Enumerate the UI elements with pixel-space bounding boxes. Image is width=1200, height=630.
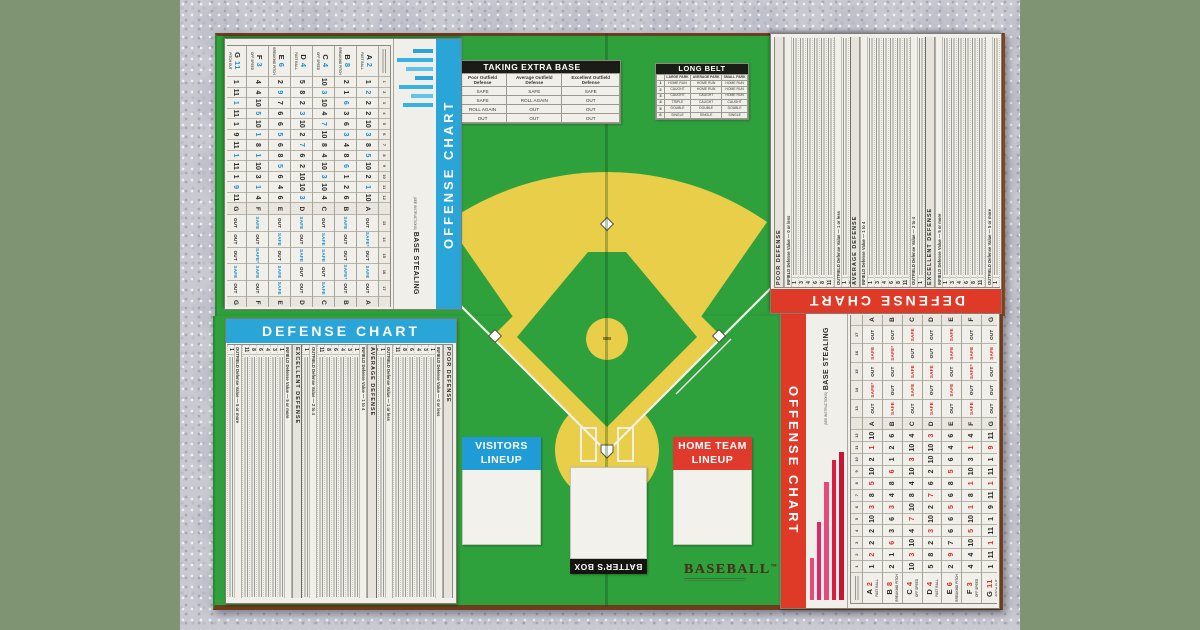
- defense-row: 4: [957, 37, 964, 287]
- offense-letter-cell: D: [291, 296, 312, 307]
- offense-row-label: B 8BREAKING PITCH: [335, 46, 356, 76]
- defense-row-text: [890, 38, 894, 275]
- offense-row: D 4FAST BALL582310276210103DSAFEOUTSAFEO…: [291, 46, 313, 307]
- offense-number-cell: 10: [922, 454, 941, 466]
- offense-steal-cell: SAFE: [902, 363, 921, 381]
- offense-number-cell: 2: [863, 537, 882, 549]
- offense-col-number: 1: [851, 561, 862, 573]
- defense-row-text: [402, 357, 406, 597]
- defense-row-text: [340, 357, 344, 597]
- offense-steal-cell: OUT: [269, 247, 290, 263]
- offense-number-cell: 4: [269, 181, 290, 192]
- offense-row: A 2FAST BALL122210385102110AOUTSAFE*OUTS…: [357, 46, 379, 307]
- defense-row-text: [821, 38, 825, 275]
- offense-row-pitch: FAST BALL: [295, 52, 299, 70]
- offense-steal-cell: OUT: [335, 231, 356, 247]
- taking-extra-base-table: TAKING EXTRA BASE Poor Outfield DefenseA…: [443, 60, 621, 124]
- offense-number-cell: 2: [357, 108, 378, 119]
- defense-row-text: [251, 357, 255, 597]
- offense-row-pitch: PITCH OUT: [994, 579, 997, 596]
- defense-row-number: 8: [820, 277, 826, 287]
- offense-letter-cell: C: [902, 418, 921, 430]
- offense-row: G 11PITCH OUT11111119111111911GOUTOUTOUT…: [227, 46, 247, 307]
- offense-number-cell: 10: [902, 561, 921, 573]
- offense-number-cell: 10: [313, 76, 334, 87]
- offense-steal-cell: SAFE: [227, 263, 246, 279]
- offense-number-cell: 6: [291, 150, 312, 161]
- teb-cell: ROLL AGAIN: [507, 96, 562, 105]
- offense-row-pitch: FAST BALL: [361, 52, 365, 70]
- defense-subsection-title: INFIELD Defense Value — 0 or less: [435, 345, 442, 598]
- offense-number-cell: 11: [982, 525, 997, 537]
- offense-steal-cell: OUT: [357, 214, 378, 230]
- offense-number-cell: 8: [883, 478, 902, 490]
- offense-steal-cell: OUT: [982, 400, 997, 418]
- defense-row-text: [326, 357, 330, 597]
- defense-row: 3: [302, 345, 303, 598]
- defense-row-number: 8: [971, 277, 977, 287]
- offense-row-label: A 2FAST BALL: [357, 46, 378, 76]
- defense-row-text: [395, 357, 399, 597]
- offense-col-number: 8: [379, 150, 390, 161]
- defense-subsection-title: INFIELD Defense Value — 0 or less: [785, 37, 792, 287]
- offense-number-cell: 1: [357, 76, 378, 87]
- offense-number-cell: 11: [227, 192, 246, 203]
- offense-row-label: A 2FAST BALL: [863, 573, 882, 603]
- offense-col-number: 9: [851, 466, 862, 478]
- offense-number-cell: 3: [863, 502, 882, 514]
- offense-letter-cell: G: [227, 202, 246, 214]
- offense-letter-cell: F: [962, 315, 981, 326]
- defense-grid-top: POOR DEFENSEINFIELD Defense Value — 0 or…: [774, 37, 1000, 288]
- offense-number-cell: 10: [902, 466, 921, 478]
- defense-section: AVERAGE DEFENSEINFIELD Defense Value — 1…: [850, 37, 926, 287]
- offense-number-cell: 11: [227, 87, 246, 98]
- offense-row: F 3OFF SPEED441051018110314FSAFEOUTSAFE*…: [247, 46, 269, 307]
- offense-row-number: 4: [925, 581, 934, 586]
- offense-steal-col-number: 13: [851, 400, 862, 418]
- offense-steal-cell: OUT: [902, 400, 921, 418]
- offense-steal-cell: OUT: [357, 280, 378, 296]
- offense-steal-col-number: 17: [851, 326, 862, 344]
- offense-row: C 4OFF SPEED10310471084103104COUTSAFESAF…: [313, 46, 335, 307]
- defense-row-number: 4: [415, 345, 421, 355]
- defense-row-number: 3: [799, 277, 805, 287]
- offense-steal-cell: SAFE: [863, 344, 882, 362]
- offense-number-cell: 10: [962, 514, 981, 526]
- offense-steal-col-number: 14: [379, 231, 390, 247]
- defense-row: 1: [918, 37, 925, 287]
- offense-steal-col-number: 13: [379, 214, 390, 230]
- defense-grid-bottom: POOR DEFENSEINFIELD Defense Value — 0 or…: [227, 344, 453, 598]
- offense-number-cell: 3: [291, 192, 312, 203]
- defense-row-text: [229, 357, 233, 597]
- legend-bars-red: [810, 450, 844, 600]
- offense-row-number: 2: [865, 582, 874, 587]
- offense-number-cell: 8: [291, 87, 312, 98]
- offense-letter-cell: F: [962, 418, 981, 430]
- offense-letter-cell: E: [269, 202, 290, 214]
- defense-row-number: 3: [422, 345, 428, 355]
- defense-row-text: [319, 357, 323, 597]
- offense-row-pitch: PITCH OUT: [229, 52, 233, 69]
- offense-number-cell: 6: [269, 192, 290, 203]
- offense-row-pitch: FAST BALL: [875, 579, 879, 597]
- offense-number-cell: 6: [269, 118, 290, 129]
- offense-row-code: B 8: [885, 581, 894, 594]
- defense-row-number: 4: [264, 345, 270, 355]
- offense-number-cell: 8: [247, 139, 268, 150]
- defense-row: 1: [792, 37, 799, 287]
- defense-row-number: 3: [346, 345, 352, 355]
- defense-row-number: 1: [943, 277, 949, 287]
- offense-number-cell: 3: [962, 454, 981, 466]
- offense-row-code: E 6: [278, 55, 287, 68]
- offense-number-cell: 1: [982, 537, 997, 549]
- defense-row: 8: [400, 345, 407, 598]
- defense-row-text: [897, 38, 901, 275]
- defense-row: 1: [993, 37, 1000, 287]
- offense-number-cell: 10: [863, 514, 882, 526]
- offense-row-label: D 4FAST BALL: [922, 573, 941, 603]
- home-lineup-line1: HOME TEAM: [678, 440, 747, 453]
- offense-col-number: 11: [851, 442, 862, 454]
- offense-row-number: 11: [984, 579, 993, 588]
- defense-section-title: AVERAGE DEFENSE: [367, 345, 376, 598]
- offense-steal-cell: SAFE: [883, 400, 902, 418]
- offense-col-number: 5: [851, 514, 862, 526]
- offense-col-number: 2: [851, 549, 862, 561]
- baseball-logo: BASEBALLTM: [684, 560, 776, 581]
- offense-steal-cell: OUT: [962, 326, 981, 344]
- offense-steal-cell: SAFE: [902, 381, 921, 399]
- offense-header-corner: [379, 46, 390, 76]
- offense-number-cell: 1: [863, 442, 882, 454]
- defense-subsection: OUTFIELD Defense Value — 2 to 4135710: [910, 37, 926, 287]
- defense-subsection: INFIELD Defense Value — 5 or more1346811: [935, 37, 985, 287]
- offense-number-cell: 6: [942, 525, 961, 537]
- offense-number-cell: 6: [942, 454, 961, 466]
- offense-steal-cell: SAFE: [902, 326, 921, 344]
- defense-subsection: OUTFIELD Defense Value — 1 or less135710: [834, 37, 850, 287]
- offense-letter-cell: A: [357, 202, 378, 214]
- offense-number-cell: 10: [313, 97, 334, 108]
- offense-number-cell: 8: [357, 139, 378, 150]
- offense-steal-col-number: 16: [379, 263, 390, 279]
- teb-cell: OUT: [562, 105, 620, 114]
- defense-row-number: 4: [957, 277, 963, 287]
- offense-row-pitch: BREAKING PITCH: [895, 574, 899, 601]
- offense-letter-cell: D: [922, 418, 941, 430]
- defense-row: 11: [317, 345, 324, 598]
- offense-number-cell: 10: [247, 160, 268, 171]
- offense-number-cell: 6: [335, 97, 356, 108]
- offense-number-cell: 1: [863, 561, 882, 573]
- offense-number-cell: 8: [942, 478, 961, 490]
- offense-number-cell: 1: [982, 454, 997, 466]
- defense-subsection-title: OUTFIELD Defense Value — 2 to 4: [911, 37, 918, 287]
- offense-number-cell: 11: [227, 160, 246, 171]
- offense-steal-cell: SAFE: [247, 263, 268, 279]
- offense-number-cell: 5: [269, 129, 290, 140]
- offense-steal-cell: OUT: [227, 280, 246, 296]
- offense-number-cell: 8: [269, 150, 290, 161]
- offense-col-number: 12: [379, 192, 390, 203]
- offense-letter-cell: B: [883, 418, 902, 430]
- offense-steal-cell: OUT: [922, 344, 941, 362]
- defense-row: 1: [428, 345, 435, 598]
- offense-chart-panel-top-left: OFFENSE CHART BASE STEALING (SEE INSTRUC…: [224, 38, 462, 310]
- offense-number-cell: 1: [227, 171, 246, 182]
- offense-number-cell: 3: [883, 502, 902, 514]
- offense-number-cell: 5: [291, 76, 312, 87]
- visitors-lineup-box: VISITORS LINEUP: [462, 437, 541, 545]
- offense-number-cell: 2: [291, 97, 312, 108]
- defense-section-title: POOR DEFENSE: [775, 37, 784, 287]
- offense-number-cell: 7: [313, 118, 334, 129]
- offense-col-number: 10: [379, 171, 390, 182]
- offense-row-label: G 11PITCH OUT: [227, 46, 246, 76]
- batters-box-card-area: [570, 467, 647, 559]
- offense-col-number: 2: [379, 87, 390, 98]
- offense-number-cell: 2: [883, 561, 902, 573]
- offense-number-cell: 6: [883, 514, 902, 526]
- defense-row: 6: [331, 345, 338, 598]
- offense-row: G 11PITCH OUT11111119111111911GOUTOUTOUT…: [981, 315, 997, 603]
- batters-box-card: BATTER'S BOX: [570, 467, 647, 574]
- offense-steal-cell: SAFE: [962, 344, 981, 362]
- teb-row: 4ROLL AGAINOUTOUT: [445, 105, 620, 114]
- defense-row: 3: [421, 345, 428, 598]
- defense-row-number: 1: [303, 345, 309, 355]
- offense-number-cell: 7: [942, 537, 961, 549]
- defense-row: 6: [813, 37, 820, 287]
- offense-row-number: 3: [964, 582, 973, 587]
- offense-letter-cell: G: [982, 315, 997, 326]
- offense-number-cell: 3: [335, 129, 356, 140]
- offense-row: E 6BREAKING PITCH297665685646EOUTSAFEOUT…: [941, 315, 961, 603]
- teb-cell: SAFE: [507, 87, 562, 96]
- offense-steal-cell: SAFE: [269, 263, 290, 279]
- teb-cell: SAFE: [459, 96, 507, 105]
- offense-number-cell: 6: [883, 537, 902, 549]
- offense-col-number: 4: [851, 525, 862, 537]
- defense-row: 8: [249, 345, 256, 598]
- offense-number-cell: 9: [942, 549, 961, 561]
- offense-row-pitch: BREAKING PITCH: [273, 47, 277, 74]
- offense-letter-cell: D: [291, 202, 312, 214]
- offense-number-cell: 8: [902, 490, 921, 502]
- defense-row-number: 11: [903, 277, 909, 287]
- offense-steal-cell: OUT: [922, 326, 941, 344]
- offense-number-cell: 10: [863, 466, 882, 478]
- offense-steal-cell: OUT: [313, 263, 334, 279]
- offense-number-cell: 1: [962, 442, 981, 454]
- offense-number-cell: 2: [863, 549, 882, 561]
- home-lineup-card-area: [673, 470, 752, 545]
- defense-section-title: EXCELLENT DEFENSE: [926, 37, 935, 287]
- offense-number-cell: 9: [982, 442, 997, 454]
- offense-number-cell: 1: [962, 502, 981, 514]
- defense-subsection-title: OUTFIELD Defense Value — 5 or more: [986, 37, 993, 287]
- defense-row-number: 4: [806, 277, 812, 287]
- offense-steal-cell: OUT: [291, 263, 312, 279]
- offense-steal-cell: OUT: [902, 344, 921, 362]
- offense-number-cell: 4: [902, 478, 921, 490]
- defense-row: 8: [324, 345, 331, 598]
- offense-number-cell: 7: [291, 139, 312, 150]
- offense-number-cell: 7: [269, 97, 290, 108]
- defense-row-text: [800, 38, 804, 275]
- offense-row-pitch: BREAKING PITCH: [955, 574, 959, 601]
- offense-steal-cell: OUT: [247, 280, 268, 296]
- base-stealing-sub-blue: (SEE INSTRUCTIONS): [413, 196, 417, 229]
- offense-number-cell: 11: [982, 430, 997, 442]
- offense-number-cell: 6: [335, 192, 356, 203]
- base-stealing-sub-red: (SEE INSTRUCTIONS): [824, 392, 828, 425]
- home-team-lineup-box: HOME TEAM LINEUP: [673, 437, 752, 545]
- defense-section-title: POOR DEFENSE: [443, 345, 452, 598]
- offense-number-cell: 5: [942, 466, 961, 478]
- defense-row-number: 1: [842, 277, 848, 287]
- defense-row-text: [258, 357, 262, 597]
- defense-subsection: INFIELD Defense Value — 1 to 41346811: [860, 37, 910, 287]
- long-belt-row-label: 6: [657, 112, 665, 118]
- visitors-lineup-header: VISITORS LINEUP: [462, 437, 541, 470]
- defense-subsection: OUTFIELD Defense Value — 5 or more135710: [227, 345, 242, 598]
- defense-row-number: 11: [827, 277, 833, 287]
- defense-row-number: 1: [278, 345, 284, 355]
- defense-row: 11: [978, 37, 985, 287]
- offense-letter-cell: A: [863, 418, 882, 430]
- offense-row-label: E 6BREAKING PITCH: [269, 46, 290, 76]
- offense-steal-cell: OUT: [883, 363, 902, 381]
- offense-number-cell: 3: [313, 171, 334, 182]
- defense-row-text: [279, 357, 283, 597]
- offense-letter-cell: C: [313, 202, 334, 214]
- defense-row-text: [972, 38, 976, 275]
- offense-row-code: C 4: [905, 581, 914, 594]
- offense-number-cell: 10: [313, 129, 334, 140]
- defense-subsection-title: INFIELD Defense Value — 1 to 4: [359, 345, 366, 598]
- teb-cell: OUT: [562, 96, 620, 105]
- defense-row-number: 11: [318, 345, 324, 355]
- offense-row-number: 11: [234, 61, 243, 70]
- defense-subsection-title: OUTFIELD Defense Value — 1 or less: [835, 37, 842, 287]
- offense-number-cell: 2: [942, 561, 961, 573]
- offense-steal-col-number: 17: [379, 280, 390, 296]
- long-belt-row: 6SINGLESINGLESINGLE: [657, 112, 748, 118]
- offense-number-cell: 1: [982, 561, 997, 573]
- offense-steal-cell: OUT: [982, 381, 997, 399]
- offense-number-cell: 7: [902, 514, 921, 526]
- offense-number-cell: 1: [883, 454, 902, 466]
- offense-number-cell: 8: [863, 490, 882, 502]
- offense-col-number: 8: [851, 478, 862, 490]
- defense-row: 1: [378, 345, 385, 598]
- offense-number-cell: 2: [863, 454, 882, 466]
- offense-number-cell: 2: [922, 466, 941, 478]
- offense-number-cell: 5: [863, 478, 882, 490]
- offense-number-cell: 4: [247, 192, 268, 203]
- defense-grid-wrap-top: POOR DEFENSEINFIELD Defense Value — 0 or…: [774, 37, 1000, 288]
- offense-row-pitch: OFF SPEED: [974, 579, 978, 597]
- offense-number-cell: 1: [357, 181, 378, 192]
- visitors-lineup-card-area: [462, 470, 541, 545]
- offense-letter-cell: A: [357, 296, 378, 307]
- offense-row: D 4FAST BALL582310276210103DSAFEOUTSAFEO…: [921, 315, 941, 603]
- offense-number-cell: 2: [335, 181, 356, 192]
- offense-number-cell: 11: [982, 490, 997, 502]
- defense-row-number: 1: [353, 345, 359, 355]
- offense-chart-title-blue: OFFENSE CHART: [441, 99, 456, 249]
- offense-number-cell: 1: [247, 129, 268, 140]
- offense-number-cell: 10: [922, 514, 941, 526]
- defense-row-text: [979, 38, 983, 275]
- offense-number-cell: 6: [335, 160, 356, 171]
- offense-steal-cell: SAFE*: [962, 363, 981, 381]
- offense-row: B 8BREAKING PITCH216363486126BSAFEOUTOUT…: [882, 315, 902, 603]
- offense-number-cell: 8: [335, 150, 356, 161]
- header-smudge: [854, 576, 858, 600]
- offense-col-number: 7: [851, 490, 862, 502]
- defense-section-title: AVERAGE DEFENSE: [851, 37, 860, 287]
- offense-number-cell: 10: [291, 181, 312, 192]
- offense-steal-cell: SAFE: [357, 263, 378, 279]
- offense-row-number: 8: [344, 63, 353, 68]
- offense-row-code: B 8: [344, 54, 353, 67]
- offense-number-cell: 4: [962, 561, 981, 573]
- offense-row-code: F 3: [964, 582, 973, 594]
- defense-row: 11: [827, 37, 834, 287]
- offense-steal-cell: SAFE: [269, 280, 290, 296]
- defense-row: 1: [302, 345, 309, 598]
- defense-row: 8: [896, 37, 903, 287]
- offense-steal-cell: SAFE: [313, 280, 334, 296]
- defense-row-text: [807, 38, 811, 275]
- offense-midstrip-blue: BASE STEALING (SEE INSTRUCTIONS): [393, 39, 436, 309]
- defense-row-text: [423, 357, 427, 597]
- offense-number-cell: 4: [247, 76, 268, 87]
- offense-steal-cell: OUT: [922, 381, 941, 399]
- defense-row: 3: [270, 345, 277, 598]
- offense-col-number: 3: [851, 537, 862, 549]
- offense-row-number: 8: [885, 581, 894, 586]
- offense-number-cell: 11: [227, 139, 246, 150]
- offense-letter-header: [379, 296, 390, 307]
- defense-section: AVERAGE DEFENSEINFIELD Defense Value — 1…: [302, 345, 378, 598]
- offense-row-pitch: OFF SPEED: [251, 52, 255, 70]
- offense-number-cell: 2: [357, 171, 378, 182]
- defense-row-text: [904, 38, 908, 275]
- offense-number-cell: 11: [227, 108, 246, 119]
- offense-col-number: 3: [379, 97, 390, 108]
- defense-row-text: [814, 38, 818, 275]
- home-lineup-line2: LINEUP: [692, 454, 734, 467]
- defense-row: 1: [277, 345, 284, 598]
- offense-number-cell: 9: [227, 129, 246, 140]
- offense-number-cell: 3: [335, 108, 356, 119]
- offense-number-cell: 6: [335, 118, 356, 129]
- defense-chart-title-top: DEFENSE CHART: [807, 293, 965, 309]
- offense-number-cell: 6: [883, 430, 902, 442]
- offense-number-cell: 1: [335, 171, 356, 182]
- offense-steal-cell: SAFE: [269, 231, 290, 247]
- defense-chart-panel-top-right: DEFENSE CHART POOR DEFENSEINFIELD Defens…: [770, 33, 1002, 314]
- teb-col-header: Average Outfield Defense: [507, 74, 562, 87]
- offense-steal-cell: SAFE: [291, 214, 312, 230]
- defense-row-number: 6: [408, 345, 414, 355]
